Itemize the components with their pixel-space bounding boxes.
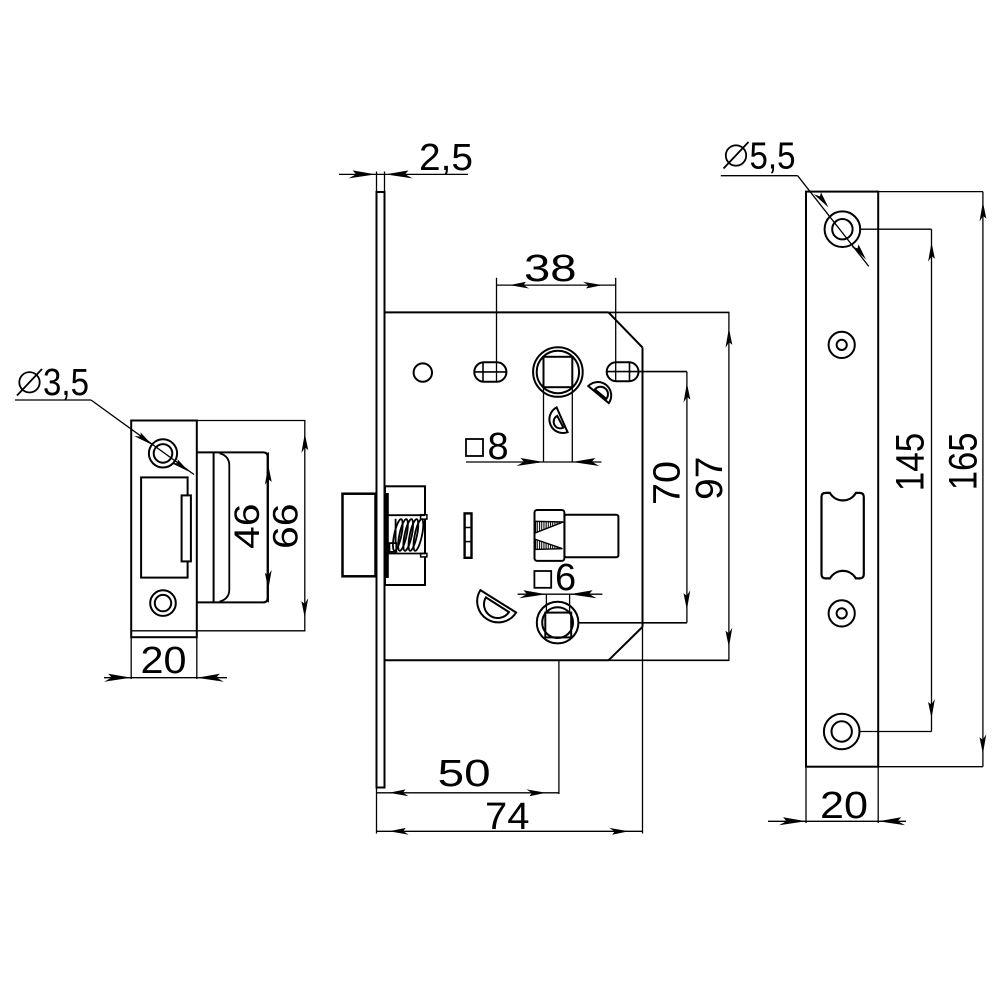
svg-text:165: 165 <box>942 433 986 491</box>
svg-text:145: 145 <box>888 433 932 492</box>
svg-text:8: 8 <box>488 426 509 468</box>
svg-text:38: 38 <box>524 248 577 290</box>
svg-text:97: 97 <box>689 457 731 501</box>
svg-text:66: 66 <box>267 504 306 550</box>
svg-text:20: 20 <box>820 785 868 827</box>
svg-text:3,5: 3,5 <box>43 362 89 404</box>
svg-text:5,5: 5,5 <box>750 135 796 177</box>
svg-text:46: 46 <box>228 504 267 550</box>
svg-text:20: 20 <box>141 640 187 682</box>
svg-text:74: 74 <box>485 796 530 838</box>
svg-text:6: 6 <box>555 557 576 599</box>
svg-text:70: 70 <box>647 461 689 505</box>
svg-text:2,5: 2,5 <box>419 137 473 179</box>
svg-text:50: 50 <box>438 753 491 795</box>
